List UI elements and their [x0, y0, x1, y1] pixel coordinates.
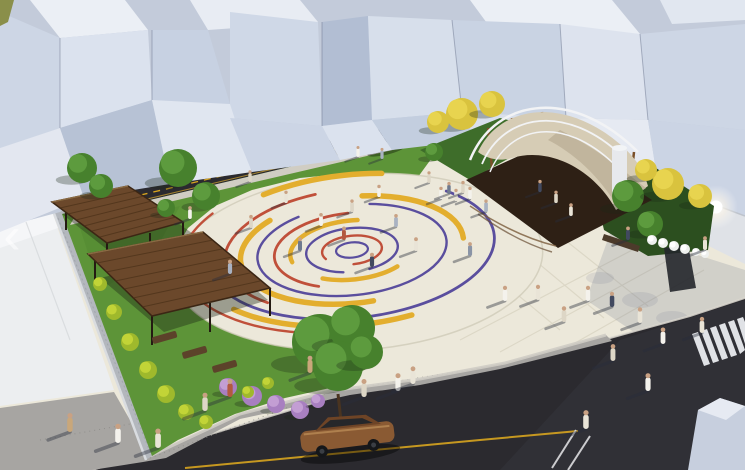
render-viewport: ‹: [0, 0, 745, 470]
chevron-left-icon: ‹: [3, 210, 20, 262]
plaza-render: [0, 0, 745, 470]
carousel-prev-button[interactable]: ‹: [0, 206, 28, 266]
